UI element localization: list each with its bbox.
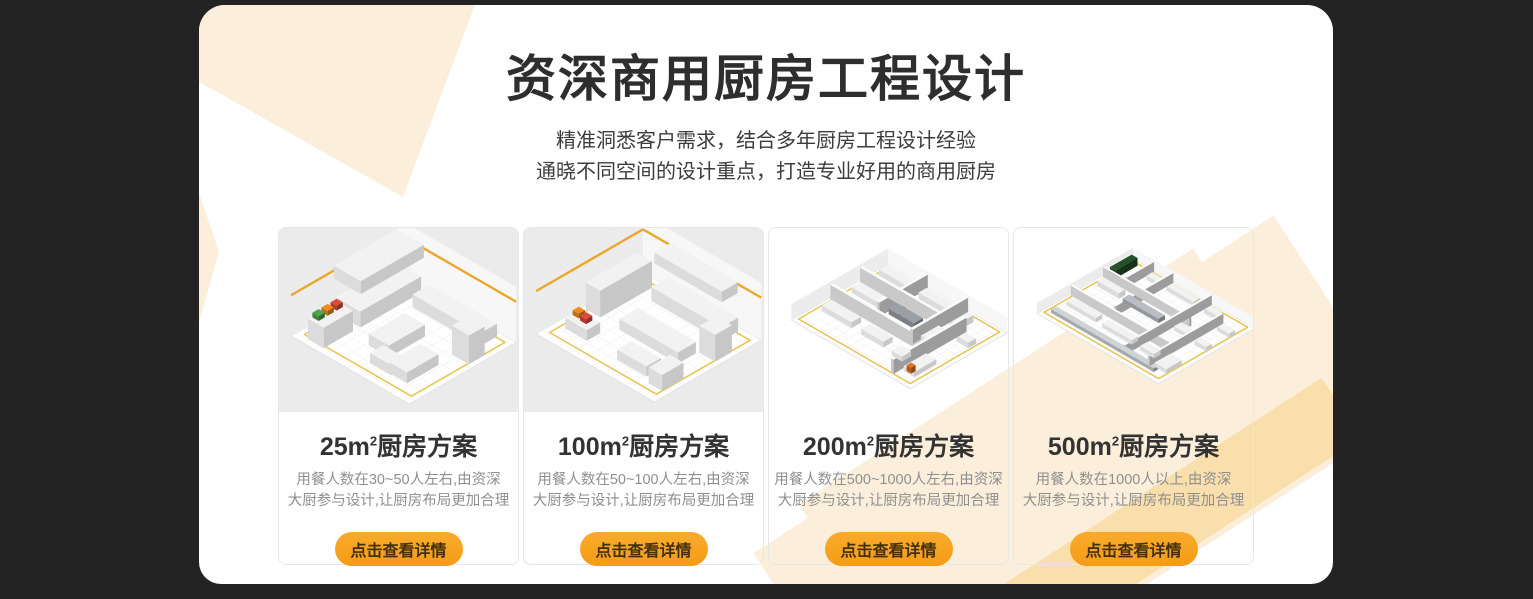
kitchen-render-500sqm [1014,228,1253,412]
section-subtitle-line1: 精准洞悉客户需求，结合多年厨房工程设计经验 [199,126,1333,157]
plan-area-sup: 2 [1112,434,1119,449]
view-details-button-500sqm[interactable]: 点击查看详情 [1070,532,1198,566]
page-background: 资深商用厨房工程设计 精准洞悉客户需求，结合多年厨房工程设计经验 通晓不同空间的… [0,0,1533,599]
section-header: 资深商用厨房工程设计 精准洞悉客户需求，结合多年厨房工程设计经验 通晓不同空间的… [199,48,1333,188]
desc-line-2: 大厨参与设计,让厨房布局更加合理 [778,493,1000,509]
view-details-button-100sqm[interactable]: 点击查看详情 [580,532,708,566]
plan-card-200sqm: 200m2厨房方案 用餐人数在500~1000人左右,由资深大厨参与设计,让厨房… [768,227,1009,565]
desc-line-1: 用餐人数在50~100人左右,由资深 [537,472,749,488]
plan-title-suffix: 厨房方案 [874,433,974,461]
desc-line-2: 大厨参与设计,让厨房布局更加合理 [1023,493,1245,509]
section-subtitle-line2: 通晓不同空间的设计重点，打造专业好用的商用厨房 [199,157,1333,188]
plan-card-title-200sqm: 200m2厨房方案 [769,427,1008,463]
plan-card-row: 25m2厨房方案 用餐人数在30~50人左右,由资深大厨参与设计,让厨房布局更加… [278,227,1254,565]
plan-card-desc-200sqm: 用餐人数在500~1000人左右,由资深大厨参与设计,让厨房布局更加合理 [769,470,1008,512]
plan-card-desc-100sqm: 用餐人数在50~100人左右,由资深大厨参与设计,让厨房布局更加合理 [524,470,763,512]
kitchen-render-25sqm [279,228,518,412]
plan-area-value: 200m [803,433,867,461]
view-details-button-200sqm[interactable]: 点击查看详情 [825,532,953,566]
plan-area-value: 100m [558,433,622,461]
plan-area-sup: 2 [622,434,629,449]
plan-card-25sqm: 25m2厨房方案 用餐人数在30~50人左右,由资深大厨参与设计,让厨房布局更加… [278,227,519,565]
plan-area-value: 500m [1048,433,1112,461]
plan-area-value: 25m [320,433,370,461]
desc-line-1: 用餐人数在500~1000人左右,由资深 [774,472,1002,488]
plan-card-desc-500sqm: 用餐人数在1000人以上,由资深大厨参与设计,让厨房布局更加合理 [1014,470,1253,512]
desc-line-2: 大厨参与设计,让厨房布局更加合理 [288,493,510,509]
desc-line-1: 用餐人数在1000人以上,由资深 [1036,472,1232,488]
plan-area-sup: 2 [867,434,874,449]
plan-card-100sqm: 100m2厨房方案 用餐人数在50~100人左右,由资深大厨参与设计,让厨房布局… [523,227,764,565]
section-title: 资深商用厨房工程设计 [199,48,1333,110]
content-panel: 资深商用厨房工程设计 精准洞悉客户需求，结合多年厨房工程设计经验 通晓不同空间的… [199,5,1333,584]
plan-title-suffix: 厨房方案 [1119,433,1219,461]
kitchen-render-100sqm [524,228,763,412]
plan-card-500sqm: 500m2厨房方案 用餐人数在1000人以上,由资深大厨参与设计,让厨房布局更加… [1013,227,1254,565]
desc-line-1: 用餐人数在30~50人左右,由资深 [296,472,500,488]
plan-card-title-500sqm: 500m2厨房方案 [1014,427,1253,463]
plan-card-title-100sqm: 100m2厨房方案 [524,427,763,463]
plan-card-title-25sqm: 25m2厨房方案 [279,427,518,463]
plan-title-suffix: 厨房方案 [629,433,729,461]
decor-sliver-left [199,193,219,323]
plan-card-desc-25sqm: 用餐人数在30~50人左右,由资深大厨参与设计,让厨房布局更加合理 [279,470,518,512]
kitchen-render-200sqm [769,228,1008,412]
view-details-button-25sqm[interactable]: 点击查看详情 [335,532,463,566]
plan-title-suffix: 厨房方案 [377,433,477,461]
desc-line-2: 大厨参与设计,让厨房布局更加合理 [533,493,755,509]
